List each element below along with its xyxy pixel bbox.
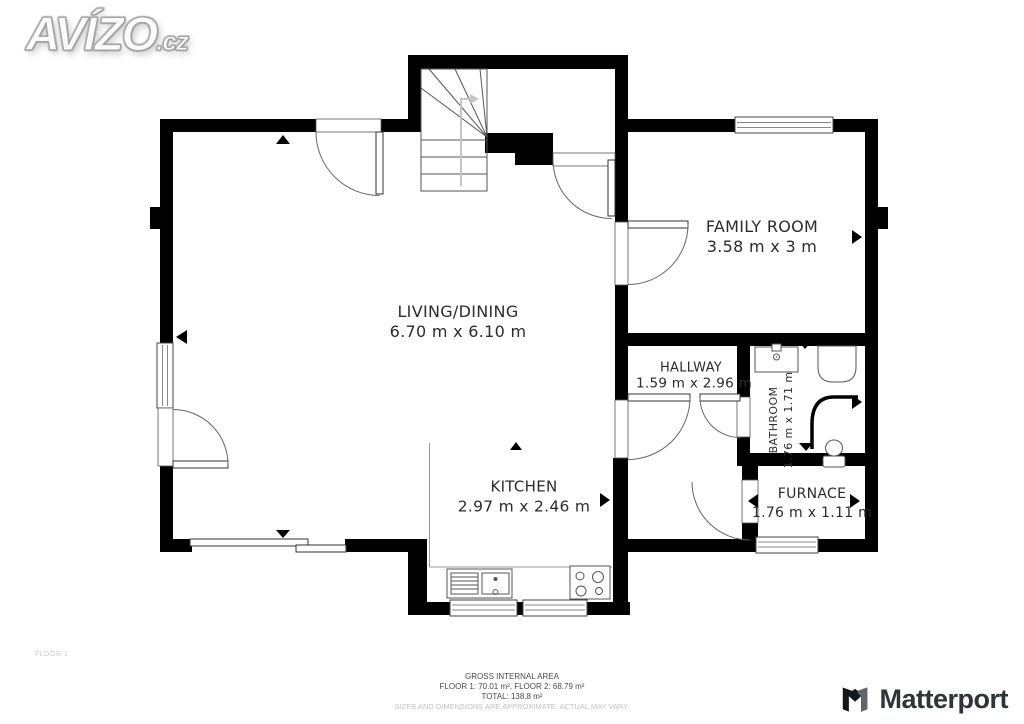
stairs-up-arrow: [470, 94, 479, 104]
floor-plan-drawing: [0, 0, 1024, 724]
room-label-family-room: FAMILY ROOM: [706, 219, 818, 235]
room-label-kitchen: KITCHEN: [490, 480, 557, 495]
stove-cooktop: [570, 566, 610, 599]
door-furnace: [692, 482, 750, 540]
door-family-room: [628, 221, 688, 285]
matterport-icon: [838, 682, 872, 716]
room-label-living-dining: LIVING/DINING: [397, 304, 518, 320]
avizo-logo-text: AVÍZO: [26, 7, 156, 60]
area-summary-title: GROSS INTERNAL AREA: [0, 672, 1024, 682]
room-dims-living-dining: 6.70 m x 6.10 m: [390, 324, 527, 340]
window-furnace: [756, 537, 818, 553]
room-label-bathroom: BATHROOM 1.76 m x 1.71 m: [766, 372, 796, 469]
room-dims-kitchen: 2.97 m x 2.46 m: [458, 499, 591, 515]
bathroom-sink: [755, 344, 798, 372]
staircase: [421, 69, 487, 191]
window-left-wall: [157, 343, 173, 408]
window-kitchen-2: [523, 600, 587, 616]
matterport-logo-text: Matterport: [880, 684, 1009, 715]
kitchen-sink: [447, 569, 512, 598]
door-left-exterior: [173, 410, 228, 469]
room-label-bathroom-name: BATHROOM: [766, 372, 781, 469]
room-label-hallway: HALLWAY: [660, 362, 722, 375]
floorplan-page: AVÍZO.cz LIVING/DINING 6.70 m x 6.10 m F…: [0, 0, 1024, 724]
door-stair-hall: [553, 160, 615, 219]
room-dims-furnace: 1.76 m x 1.11 m: [752, 506, 872, 520]
room-dims-family-room: 3.58 m x 3 m: [707, 239, 817, 255]
room-dims-hallway: 1.59 m x 2.96 m: [636, 377, 752, 391]
door-hallway: [628, 394, 690, 460]
sliding-door: [190, 539, 346, 552]
avizo-logo: AVÍZO.cz: [26, 6, 188, 61]
avizo-logo-suffix: .cz: [156, 26, 188, 56]
kitchen-fixtures: [430, 443, 613, 599]
window-family-room: [735, 117, 833, 133]
floor-tag: FLOOR 1: [35, 651, 68, 658]
matterport-logo: Matterport: [838, 682, 1009, 716]
door-top-entry: [316, 132, 383, 196]
bathtub: [818, 346, 856, 382]
room-dims-bathroom: 1.76 m x 1.71 m: [781, 372, 796, 469]
room-label-furnace: FURNACE: [778, 487, 847, 501]
door-bathroom: [700, 394, 740, 438]
window-kitchen-1: [450, 600, 517, 616]
door-openings: [158, 119, 758, 523]
